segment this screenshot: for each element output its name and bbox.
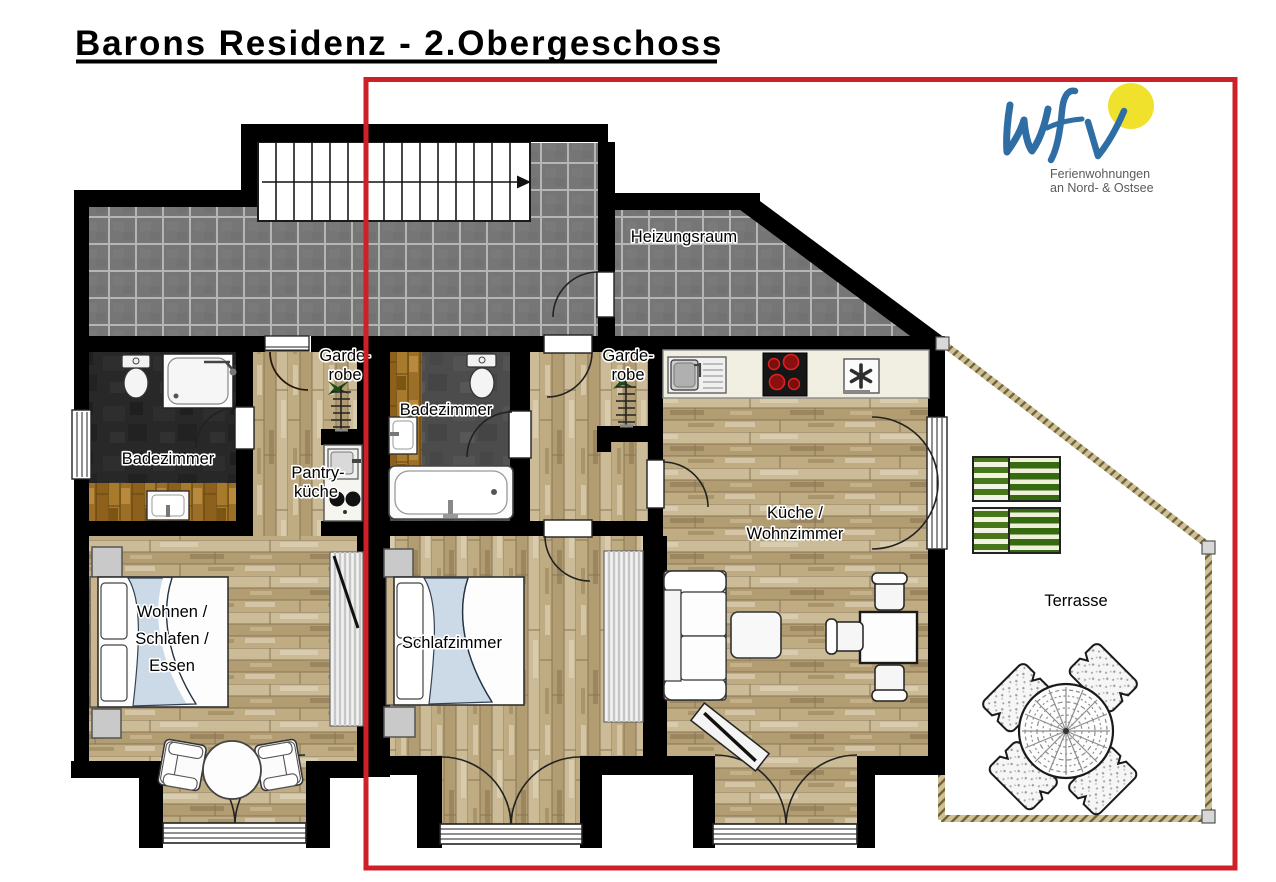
svg-text:Badezimmer: Badezimmer xyxy=(122,450,215,468)
svg-text:robe: robe xyxy=(611,366,644,384)
svg-text:Essen: Essen xyxy=(149,657,195,675)
svg-text:Garde-: Garde- xyxy=(602,347,653,365)
svg-text:robe: robe xyxy=(328,366,361,384)
svg-text:Schlafzimmer: Schlafzimmer xyxy=(402,634,502,652)
svg-text:Ferienwohnungen: Ferienwohnungen xyxy=(1050,167,1150,181)
svg-text:Terrasse: Terrasse xyxy=(1044,592,1107,610)
svg-text:Schlafen /: Schlafen / xyxy=(135,630,209,648)
svg-text:Pantry-: Pantry- xyxy=(291,464,344,482)
svg-text:Küche /: Küche / xyxy=(767,504,823,522)
svg-text:Wohnen /: Wohnen / xyxy=(137,603,208,621)
svg-text:Badezimmer: Badezimmer xyxy=(400,401,493,419)
svg-text:küche: küche xyxy=(294,483,338,501)
svg-text:Barons Residenz - 2.Obergescho: Barons Residenz - 2.Obergeschoss xyxy=(75,24,723,63)
svg-text:Garde-: Garde- xyxy=(319,347,370,365)
svg-text:Wohnzimmer: Wohnzimmer xyxy=(747,525,844,543)
svg-text:an Nord- & Ostsee: an Nord- & Ostsee xyxy=(1050,181,1154,195)
svg-text:Heizungsraum: Heizungsraum xyxy=(631,228,737,246)
